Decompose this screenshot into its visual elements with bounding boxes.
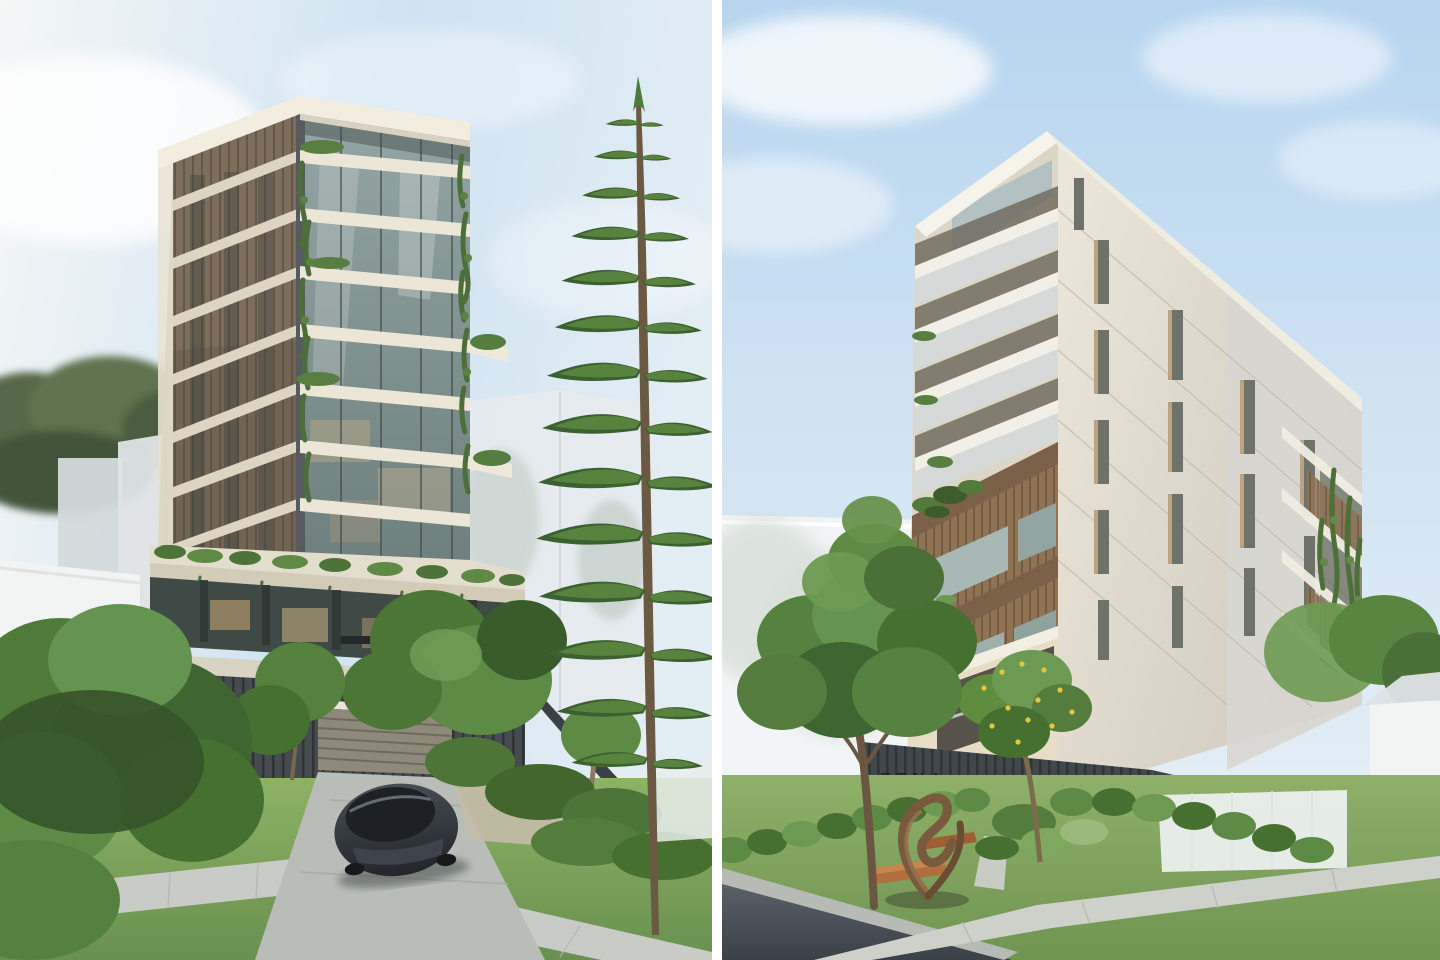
neighbour-fence (655, 760, 712, 842)
panel-divider (712, 0, 722, 960)
right-render-scene: ETNA (722, 0, 1440, 960)
left-render-scene (0, 0, 712, 960)
right-render: ETNA (722, 0, 1440, 960)
render-pair: ETNA (0, 0, 1440, 960)
apartment-tower (158, 96, 512, 570)
left-render (0, 0, 712, 960)
